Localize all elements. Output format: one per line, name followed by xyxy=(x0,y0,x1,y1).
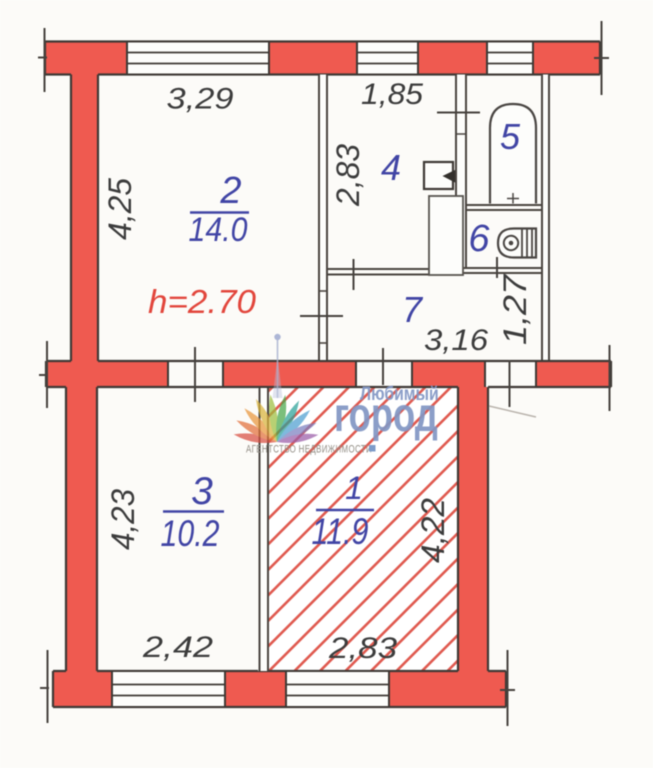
svg-text:10.2: 10.2 xyxy=(161,513,220,554)
svg-text:3,16: 3,16 xyxy=(424,324,488,357)
svg-text:11.9: 11.9 xyxy=(312,511,369,552)
svg-text:4: 4 xyxy=(381,147,401,188)
svg-text:2: 2 xyxy=(219,170,241,212)
svg-text:1,85: 1,85 xyxy=(361,78,423,111)
svg-text:1: 1 xyxy=(345,470,363,506)
svg-text:6: 6 xyxy=(468,218,490,260)
svg-text:5: 5 xyxy=(500,116,521,157)
svg-text:4,22: 4,22 xyxy=(415,498,451,563)
svg-text:7: 7 xyxy=(402,289,424,330)
svg-text:4,23: 4,23 xyxy=(105,489,141,550)
svg-text:2,42: 2,42 xyxy=(142,631,214,664)
svg-text:14.0: 14.0 xyxy=(189,211,248,249)
svg-text:4,25: 4,25 xyxy=(102,178,138,240)
svg-text:h=2.70: h=2.70 xyxy=(148,283,257,320)
svg-text:2,83: 2,83 xyxy=(330,144,366,207)
svg-text:2,83: 2,83 xyxy=(328,632,398,665)
svg-text:3,29: 3,29 xyxy=(167,83,234,116)
svg-text:город: город xyxy=(334,388,438,442)
svg-text:3: 3 xyxy=(191,470,213,513)
svg-text:1,27: 1,27 xyxy=(497,274,533,345)
svg-text:АГЕНТСТВО НЕДВИЖИМОСТИ: АГЕНТСТВО НЕДВИЖИМОСТИ xyxy=(246,443,372,456)
